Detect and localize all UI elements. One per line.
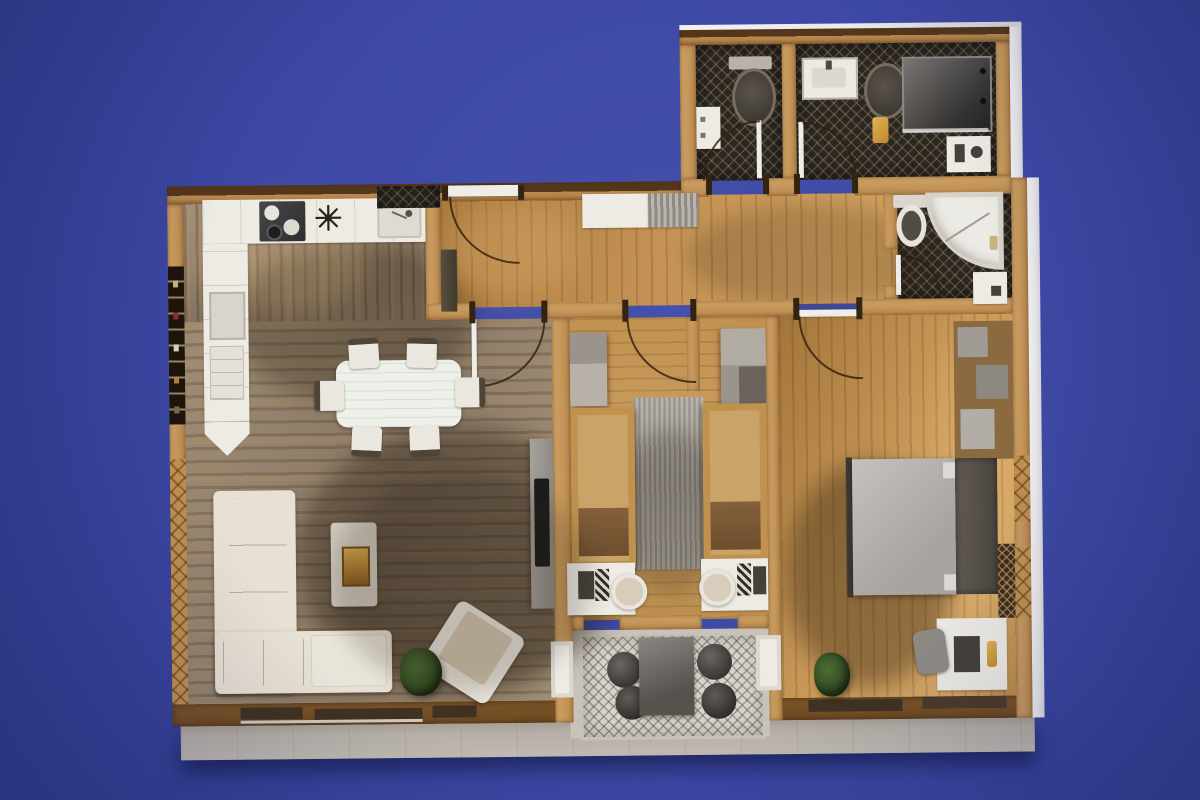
door-post bbox=[442, 186, 448, 201]
dining-chair-3 bbox=[351, 426, 382, 457]
shelf-box-1 bbox=[958, 327, 988, 357]
wine-bottle bbox=[174, 406, 179, 413]
vanity-sink bbox=[802, 57, 858, 100]
ensuite-toilet-lid bbox=[901, 211, 921, 241]
master-shelving-column bbox=[953, 321, 1013, 460]
sink-faucet bbox=[826, 61, 832, 70]
dining-chair-2 bbox=[406, 337, 437, 368]
cooktop bbox=[259, 201, 305, 241]
dining-chair-5 bbox=[314, 381, 344, 411]
bath-accessory-1 bbox=[955, 144, 965, 162]
loggia-table bbox=[639, 637, 695, 716]
door-post bbox=[518, 185, 524, 200]
ensuite-cabinet bbox=[973, 272, 1007, 304]
door-post bbox=[622, 300, 628, 322]
star-clock bbox=[315, 205, 341, 231]
wall-kids-loggia-2 bbox=[620, 615, 702, 630]
door-post bbox=[856, 297, 862, 319]
loggia-chair-3 bbox=[697, 644, 732, 680]
bath-accessory-2 bbox=[971, 146, 983, 158]
kids-wardrobe-left bbox=[570, 333, 608, 406]
kids-desk-deco-1 bbox=[595, 569, 609, 601]
master-bed bbox=[852, 458, 956, 595]
kitchen-sink bbox=[377, 204, 421, 238]
kids-bed-2 bbox=[702, 403, 768, 562]
wine-bottle bbox=[173, 312, 178, 319]
wall-kitchen-hall bbox=[425, 198, 441, 320]
wall-right-lattice-1 bbox=[1014, 455, 1031, 521]
kids-wardrobe-right bbox=[721, 328, 767, 410]
window-master-2 bbox=[922, 696, 1006, 709]
master-headboard-wardrobe bbox=[955, 458, 998, 594]
bath-mat-shelf bbox=[947, 136, 991, 172]
pot-1 bbox=[264, 205, 279, 220]
hall-sideboard bbox=[582, 193, 648, 228]
door-post bbox=[541, 301, 547, 323]
loggia-planter-right bbox=[756, 635, 782, 690]
cabinet-handle-2 bbox=[700, 133, 705, 138]
loggia-chair-1 bbox=[607, 652, 641, 688]
dining-table bbox=[336, 359, 462, 427]
corner-shower-faucet bbox=[990, 236, 998, 250]
door-post bbox=[852, 173, 858, 193]
wall-protrusion-bottom-2 bbox=[767, 178, 797, 196]
entrance-door-leaf bbox=[447, 185, 519, 197]
master-plant bbox=[814, 652, 850, 696]
master-desk-lamp bbox=[987, 641, 997, 667]
fridge-drawers bbox=[210, 346, 245, 400]
sofa-base-cushions bbox=[223, 639, 309, 686]
door-post bbox=[763, 174, 769, 194]
wall-protrusion-right bbox=[996, 42, 1011, 176]
kids-chair-2 bbox=[699, 570, 735, 606]
door-post bbox=[794, 174, 800, 194]
window-living-3 bbox=[432, 705, 476, 717]
wc-toilet bbox=[732, 68, 777, 126]
gold-pedal-bin bbox=[872, 117, 888, 143]
burner bbox=[266, 224, 282, 240]
wall-hall-south-2 bbox=[546, 302, 624, 319]
kids-bed-2-throw bbox=[710, 501, 760, 550]
kitchen-tall-cabinets bbox=[203, 244, 250, 422]
wall-kids-loggia-3 bbox=[738, 614, 769, 628]
kids-desk-deco-2 bbox=[737, 563, 751, 595]
window-living-1 bbox=[240, 707, 302, 720]
shelf-box-2 bbox=[976, 365, 1008, 399]
loggia-chair-4 bbox=[701, 683, 736, 719]
entry-mat bbox=[377, 186, 440, 209]
floor-plan-model bbox=[0, 0, 1200, 800]
basin bbox=[812, 67, 846, 87]
hall-bench-slatted bbox=[648, 193, 698, 228]
ensuite-toilet bbox=[896, 205, 926, 247]
model-cut-edge-protrusion bbox=[1009, 24, 1023, 178]
wine-bottle bbox=[173, 280, 178, 287]
shower-rail bbox=[945, 212, 990, 242]
shelf-box-3 bbox=[960, 409, 994, 449]
door-post bbox=[706, 175, 712, 195]
pillow-notch-2 bbox=[944, 574, 956, 590]
wall-bathroom-divider bbox=[782, 44, 797, 178]
wine-bottle bbox=[174, 376, 179, 383]
shower-control-1 bbox=[980, 68, 986, 74]
faucet bbox=[405, 210, 412, 217]
kids-bed-1-throw bbox=[578, 508, 628, 557]
wall-protrusion-left bbox=[680, 45, 697, 179]
master-lattice-shelf bbox=[998, 544, 1016, 618]
pillow-notch-1 bbox=[943, 462, 955, 478]
dining-chair-1 bbox=[348, 338, 380, 370]
hall-tall-cabinet bbox=[441, 249, 458, 311]
window-master-1 bbox=[808, 699, 902, 712]
cabinet-handle-1 bbox=[700, 117, 705, 122]
wall-left-lattice-panel bbox=[170, 459, 189, 704]
door-post bbox=[793, 298, 799, 320]
wall-hall-south-3 bbox=[693, 300, 796, 317]
ensuite-cabinet-item bbox=[991, 286, 1001, 296]
kids-laptop-2 bbox=[753, 566, 766, 594]
door-post bbox=[690, 299, 696, 321]
scene bbox=[0, 0, 1200, 800]
master-desk-chair bbox=[912, 627, 950, 675]
oven bbox=[209, 292, 246, 340]
shower-control-2 bbox=[980, 98, 986, 104]
master-laptop bbox=[954, 636, 980, 672]
dining-chair-4 bbox=[409, 425, 440, 456]
pot-2 bbox=[283, 219, 299, 235]
kids-chair-1 bbox=[611, 574, 647, 610]
wine-bottle bbox=[174, 344, 179, 351]
wall-right-lattice-2 bbox=[1015, 547, 1032, 617]
door-post bbox=[469, 301, 475, 323]
walk-in-shower bbox=[902, 56, 993, 133]
dining-chair-6 bbox=[455, 377, 485, 407]
